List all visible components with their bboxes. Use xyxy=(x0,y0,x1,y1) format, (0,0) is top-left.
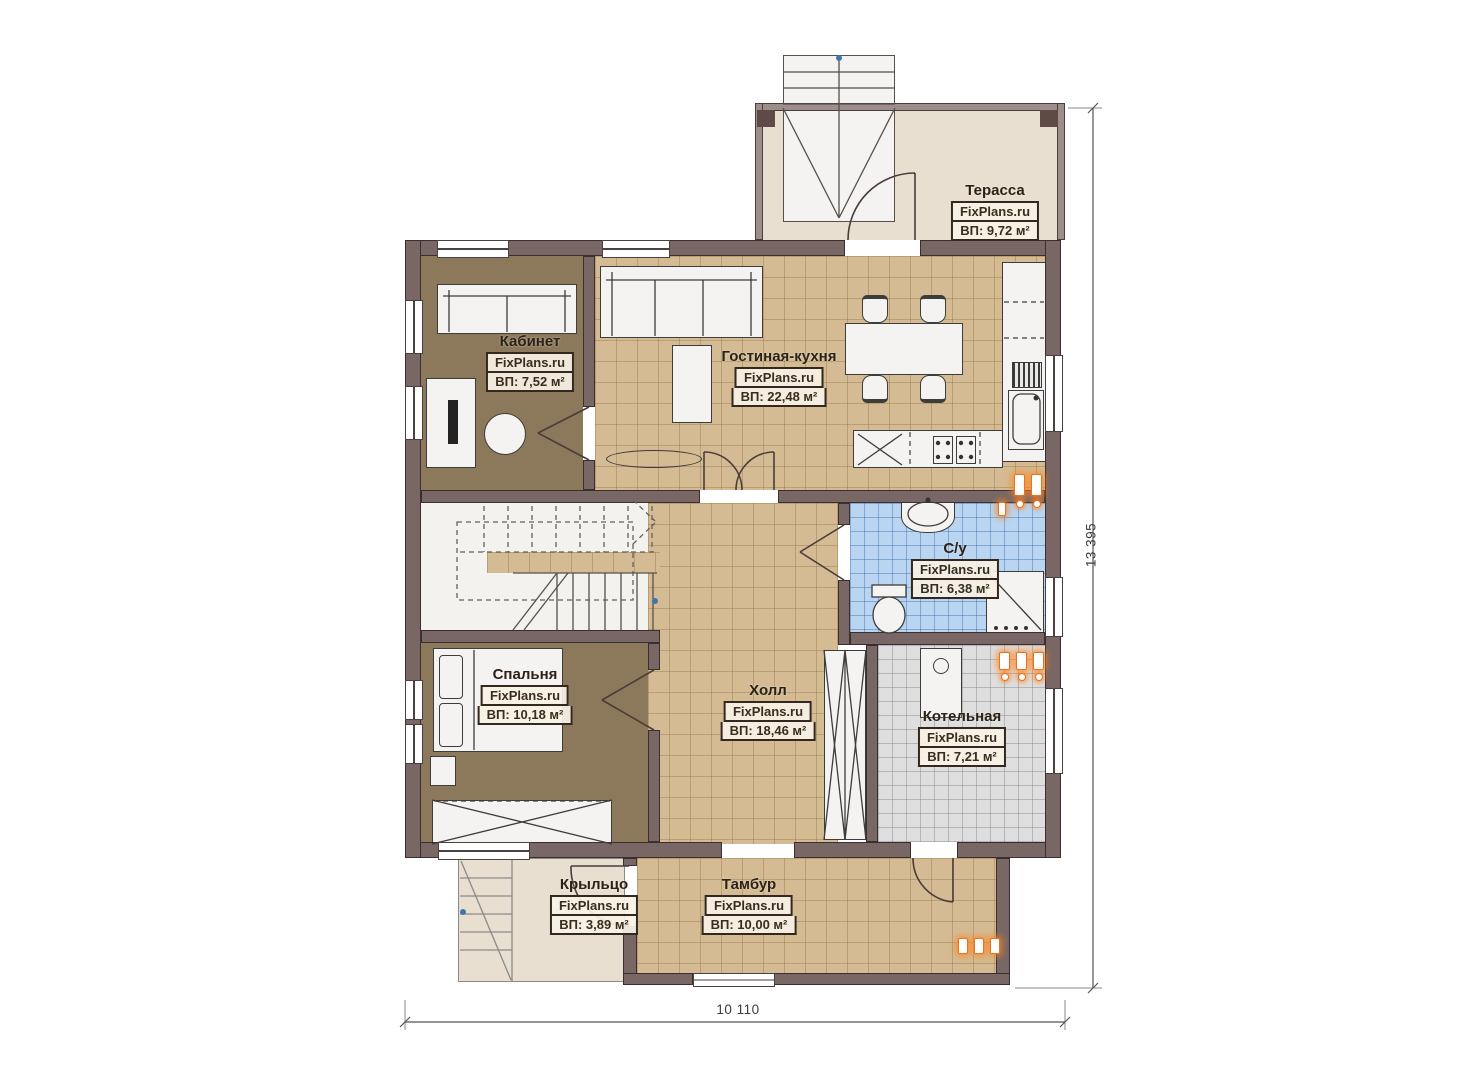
watermark: FixPlans.ru xyxy=(486,352,574,373)
wall-vestibule-bottom-2 xyxy=(773,973,1010,985)
wall-south-2 xyxy=(794,842,911,858)
room-label-office: Кабинет FixPlans.ru ВП: 7,52 м² xyxy=(486,333,574,392)
window-bedroom-west-2 xyxy=(405,724,423,764)
stove-burner-left xyxy=(933,436,953,464)
room-name: Гостиная-кухня xyxy=(722,348,837,365)
stair-landing-strip xyxy=(487,552,660,573)
radiator-vestibule-2 xyxy=(974,938,984,954)
wall-vestibule-right xyxy=(996,858,1010,985)
dining-chair-3 xyxy=(862,375,888,403)
dimension-width: 10 110 xyxy=(716,1002,759,1017)
terrace-entry-stairs xyxy=(783,55,895,222)
room-name: Спальня xyxy=(493,666,558,683)
radiator-kitchen-1 xyxy=(1014,474,1025,496)
wall-north-2 xyxy=(920,240,1061,256)
stove-burner-right xyxy=(956,436,976,464)
wall-vestibule-bottom-1 xyxy=(623,973,693,985)
room-label-living-kitchen: Гостиная-кухня FixPlans.ru ВП: 22,48 м² xyxy=(722,348,837,407)
coffee-table xyxy=(672,345,712,423)
wall-bedroom-right-1 xyxy=(648,643,660,670)
radiator-dot-1 xyxy=(1016,500,1024,508)
radiator-vestibule-1 xyxy=(958,938,968,954)
window-living-north xyxy=(602,240,670,258)
room-label-bathroom: С/у FixPlans.ru ВП: 6,38 м² xyxy=(911,540,999,599)
pillow-1 xyxy=(439,655,463,699)
radiator-dot-4 xyxy=(1018,673,1026,681)
window-bathroom-east xyxy=(1045,577,1063,637)
room-label-boiler: Котельная FixPlans.ru ВП: 7,21 м² xyxy=(918,708,1006,767)
wall-bath-left-2 xyxy=(838,580,850,645)
wall-vestibule-left-1 xyxy=(623,858,637,866)
radiator-boiler-3 xyxy=(1033,652,1044,670)
room-label-terrace: Терасса FixPlans.ru ВП: 9,72 м² xyxy=(951,182,1039,241)
watermark: FixPlans.ru xyxy=(724,701,812,722)
room-area: ВП: 10,18 м² xyxy=(478,706,573,725)
window-office-west-2 xyxy=(405,386,423,440)
watermark: FixPlans.ru xyxy=(911,559,999,580)
room-area: ВП: 6,38 м² xyxy=(911,580,999,599)
pillow-2 xyxy=(439,703,463,747)
wall-bedroom-right-2 xyxy=(648,730,660,842)
window-office-north xyxy=(437,240,509,258)
dining-chair-2 xyxy=(920,295,946,323)
room-label-vestibule: Тамбур FixPlans.ru ВП: 10,00 м² xyxy=(702,876,797,935)
window-bedroom-south xyxy=(438,842,530,860)
wall-office-1 xyxy=(583,256,595,407)
radiator-bathroom xyxy=(998,502,1006,516)
watermark: FixPlans.ru xyxy=(918,727,1006,748)
floor-plan: Терасса FixPlans.ru ВП: 9,72 м² Кабинет … xyxy=(0,0,1473,1080)
room-area: ВП: 7,21 м² xyxy=(918,748,1006,767)
living-sofa xyxy=(600,266,763,338)
window-office-west-1 xyxy=(405,300,423,354)
radiator-dot-3 xyxy=(1001,673,1009,681)
wall-office-2 xyxy=(583,460,595,490)
wall-bath-left-1 xyxy=(838,503,850,525)
room-area: ВП: 9,72 м² xyxy=(951,222,1039,241)
vestibule-floor xyxy=(637,858,996,973)
room-area: ВП: 22,48 м² xyxy=(732,388,827,407)
radiator-kitchen-2 xyxy=(1031,474,1042,496)
room-name: Тамбур xyxy=(722,876,776,893)
nightstand xyxy=(430,756,456,786)
dimension-height: 13 395 xyxy=(1084,523,1099,567)
window-bedroom-west-1 xyxy=(405,680,423,720)
room-name: С/у xyxy=(943,540,966,557)
wall-mid-1 xyxy=(421,490,700,503)
room-name: Кабинет xyxy=(500,333,561,350)
room-area: ВП: 3,89 м² xyxy=(550,916,638,935)
room-name: Крыльцо xyxy=(560,876,628,893)
window-boiler-east xyxy=(1045,688,1063,774)
radiator-boiler-1 xyxy=(999,652,1010,670)
watermark: FixPlans.ru xyxy=(735,367,823,388)
dining-table xyxy=(845,323,963,375)
office-chair xyxy=(484,413,526,455)
room-area: ВП: 18,46 м² xyxy=(721,722,816,741)
room-name: Котельная xyxy=(923,708,1002,725)
wardrobe xyxy=(432,800,612,844)
wall-mid-2 xyxy=(778,490,1045,503)
watermark: FixPlans.ru xyxy=(705,895,793,916)
terrace-pillar-left xyxy=(757,110,775,127)
window-kitchen-east xyxy=(1045,355,1063,432)
wall-boiler-left xyxy=(866,645,878,842)
office-sofa xyxy=(437,284,577,334)
room-label-porch: Крыльцо FixPlans.ru ВП: 3,89 м² xyxy=(550,876,638,935)
radiator-dot-2 xyxy=(1033,500,1041,508)
terrace-wall-right xyxy=(1057,103,1065,240)
radiator-boiler-2 xyxy=(1016,652,1027,670)
terrace-wall-top xyxy=(755,103,1065,111)
rug-ellipse xyxy=(606,450,702,468)
room-area: ВП: 7,52 м² xyxy=(486,373,574,392)
window-vestibule-south xyxy=(693,973,775,987)
room-area: ВП: 10,00 м² xyxy=(702,916,797,935)
hall-floor xyxy=(648,503,838,844)
room-label-hall: Холл FixPlans.ru ВП: 18,46 м² xyxy=(721,682,816,741)
hall-closet xyxy=(824,650,866,840)
boiler-gauge xyxy=(933,658,949,674)
room-name: Терасса xyxy=(965,182,1024,199)
kitchen-counter-bottom xyxy=(853,430,1003,468)
watermark: FixPlans.ru xyxy=(481,685,569,706)
watermark: FixPlans.ru xyxy=(951,201,1039,222)
kitchen-sink xyxy=(1008,390,1044,450)
dining-chair-4 xyxy=(920,375,946,403)
terrace-pillar-right xyxy=(1040,110,1058,127)
office-monitor xyxy=(448,400,458,444)
watermark: FixPlans.ru xyxy=(550,895,638,916)
radiator-dot-5 xyxy=(1035,673,1043,681)
room-label-bedroom: Спальня FixPlans.ru ВП: 10,18 м² xyxy=(478,666,573,725)
dining-chair-1 xyxy=(862,295,888,323)
radiator-vestibule-3 xyxy=(990,938,1000,954)
room-name: Холл xyxy=(749,682,787,699)
wall-bedroom-top xyxy=(421,630,660,643)
wall-bath-bottom xyxy=(850,632,1045,645)
kitchen-drying-rack xyxy=(1012,362,1042,388)
